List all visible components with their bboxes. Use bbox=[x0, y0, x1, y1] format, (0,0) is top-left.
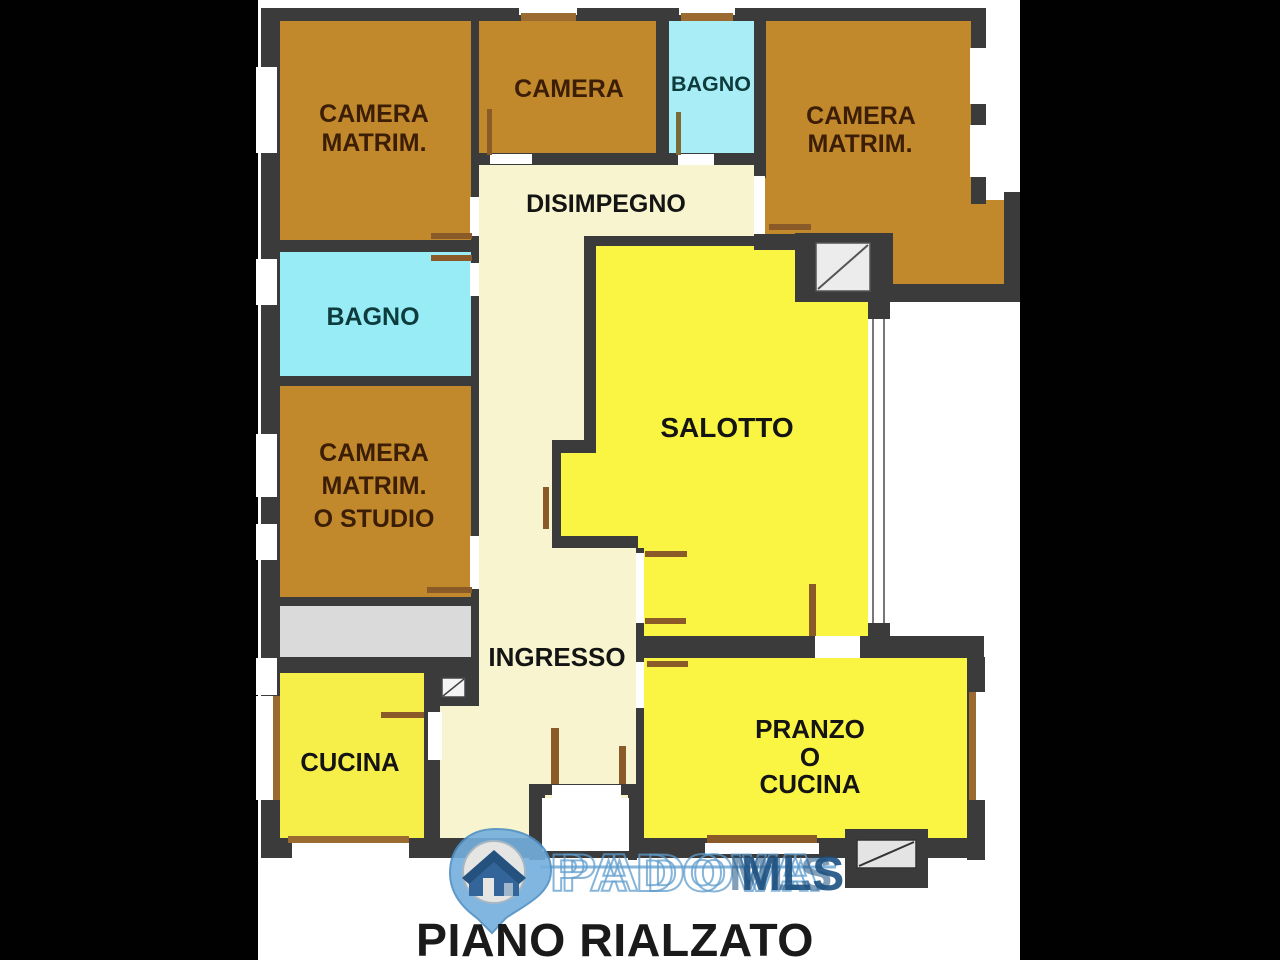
svg-text:BAGNO: BAGNO bbox=[326, 303, 419, 331]
svg-text:CAMERA: CAMERA bbox=[319, 439, 429, 467]
svg-text:O: O bbox=[800, 742, 820, 772]
svg-text:PRANZO: PRANZO bbox=[755, 714, 865, 744]
svg-text:MATRIM.: MATRIM. bbox=[807, 130, 912, 158]
svg-text:MLS: MLS bbox=[741, 848, 845, 901]
svg-text:CUCINA: CUCINA bbox=[759, 769, 860, 799]
svg-text:MATRIM.: MATRIM. bbox=[321, 129, 426, 157]
svg-text:SALOTTO: SALOTTO bbox=[660, 412, 793, 443]
svg-text:DISIMPEGNO: DISIMPEGNO bbox=[526, 190, 686, 218]
svg-text:CAMERA: CAMERA bbox=[514, 75, 624, 103]
svg-text:O STUDIO: O STUDIO bbox=[314, 505, 435, 533]
svg-text:CUCINA: CUCINA bbox=[300, 749, 399, 777]
svg-text:PIANO RIALZATO: PIANO RIALZATO bbox=[416, 914, 814, 960]
svg-text:CAMERA: CAMERA bbox=[806, 102, 916, 130]
svg-text:BAGNO: BAGNO bbox=[671, 72, 751, 96]
svg-text:CAMERA: CAMERA bbox=[319, 100, 429, 128]
svg-text:MATRIM.: MATRIM. bbox=[321, 472, 426, 500]
svg-text:INGRESSO: INGRESSO bbox=[488, 642, 625, 672]
